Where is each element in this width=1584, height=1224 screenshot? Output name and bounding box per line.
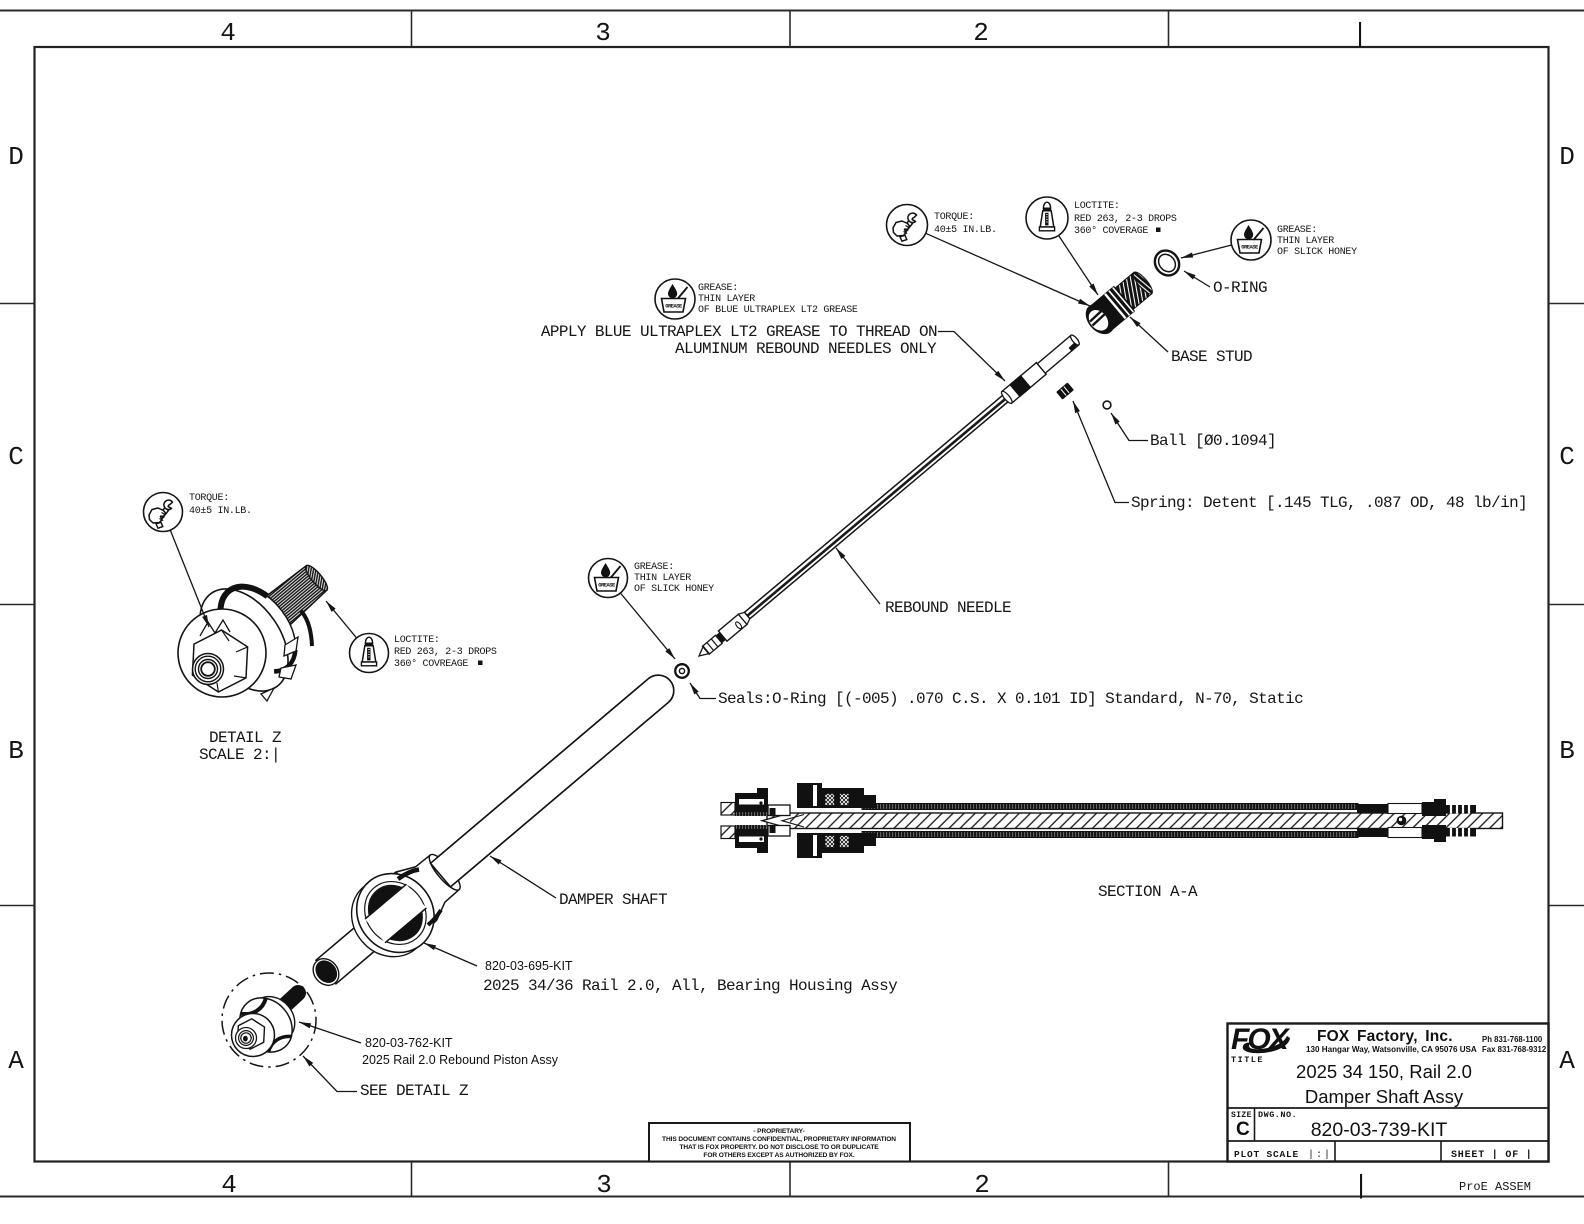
svg-text:ALUMINUM REBOUND NEEDLES ONLY: ALUMINUM REBOUND NEEDLES ONLY <box>675 340 937 358</box>
svg-text:D: D <box>1559 142 1575 172</box>
svg-text:820-03-762-KIT: 820-03-762-KIT <box>365 1036 453 1050</box>
svg-text:PLOT SCALE: PLOT SCALE <box>1234 1149 1299 1160</box>
svg-text:D: D <box>8 142 24 172</box>
svg-text:2025 34 150, Rail 2.0: 2025 34 150, Rail 2.0 <box>1296 1061 1472 1082</box>
svg-text:DAMPER SHAFT: DAMPER SHAFT <box>559 891 667 909</box>
svg-text:FOX Factory, Inc.: FOX Factory, Inc. <box>1317 1028 1453 1045</box>
svg-text:C: C <box>1236 1119 1250 1140</box>
svg-text:GREASE:: GREASE: <box>698 283 738 294</box>
svg-text:RED 263, 2-3 DROPS: RED 263, 2-3 DROPS <box>1074 214 1177 225</box>
svg-text:360° COVERAGE: 360° COVERAGE <box>1074 225 1148 237</box>
svg-text:RED 263, 2-3 DROPS: RED 263, 2-3 DROPS <box>394 647 497 658</box>
svg-text:TITLE: TITLE <box>1231 1055 1264 1065</box>
svg-text:THIN LAYER: THIN LAYER <box>1277 236 1334 247</box>
svg-text:2: 2 <box>973 18 989 48</box>
svg-text:SCALE 2:|: SCALE 2:| <box>199 746 280 764</box>
svg-text:3: 3 <box>595 18 611 48</box>
svg-text:TORQUE:: TORQUE: <box>934 212 974 223</box>
svg-text:O-RING: O-RING <box>1213 279 1267 297</box>
svg-text:360° COVREAGE: 360° COVREAGE <box>394 658 468 670</box>
svg-text:3: 3 <box>596 1170 612 1200</box>
svg-text:DETAIL Z: DETAIL Z <box>209 729 282 747</box>
svg-text:THIS DOCUMENT CONTAINS CONFIDE: THIS DOCUMENT CONTAINS CONFIDENTIAL, PRO… <box>662 1136 896 1143</box>
svg-text:- PROPRIETARY-: - PROPRIETARY- <box>753 1128 804 1135</box>
svg-text:40±5 IN.LB.: 40±5 IN.LB. <box>189 506 252 517</box>
svg-text:Spring: Detent [.145 TLG, .087: Spring: Detent [.145 TLG, .087 OD, 48 lb… <box>1131 494 1527 512</box>
svg-text:820-03-739-KIT: 820-03-739-KIT <box>1311 1119 1448 1141</box>
svg-text:C: C <box>1559 442 1575 472</box>
svg-text:A: A <box>8 1046 24 1076</box>
svg-text:GREASE:: GREASE: <box>1277 225 1317 236</box>
svg-text:A: A <box>1559 1046 1575 1076</box>
svg-text:THAT IS FOX PROPERTY. DO NOT: THAT IS FOX PROPERTY. DO NOT DISCLOSE TO… <box>679 1144 879 1151</box>
svg-text:820-03-695-KIT: 820-03-695-KIT <box>485 959 573 973</box>
svg-text:LOCTITE:: LOCTITE: <box>1074 201 1120 212</box>
svg-text:THIN LAYER: THIN LAYER <box>634 573 691 584</box>
svg-text:REBOUND NEEDLE: REBOUND NEEDLE <box>885 599 1011 617</box>
svg-text:GREASE:: GREASE: <box>634 562 674 573</box>
svg-text:SHEET | OF |: SHEET | OF | <box>1451 1149 1533 1161</box>
svg-text:Seals:O-Ring [(-005) .070 C.S.: Seals:O-Ring [(-005) .070 C.S. X 0.101 I… <box>718 690 1303 708</box>
svg-text:Damper Shaft Assy: Damper Shaft Assy <box>1305 1086 1464 1107</box>
svg-text:2025 Rail 2.0 Rebound Piston A: 2025 Rail 2.0 Rebound Piston Assy <box>362 1053 559 1067</box>
svg-text:|: | <box>1353 1171 1369 1201</box>
svg-text:Ball [Ø0.1094]: Ball [Ø0.1094] <box>1150 432 1276 450</box>
svg-text:DWG.NO.: DWG.NO. <box>1258 1110 1297 1120</box>
svg-text:BASE STUD: BASE STUD <box>1171 348 1252 366</box>
svg-text:B: B <box>8 736 24 766</box>
svg-text:ProE ASSEM: ProE ASSEM <box>1459 1180 1531 1194</box>
svg-text:APPLY BLUE ULTRAPLEX LT2 GREAS: APPLY BLUE ULTRAPLEX LT2 GREASE TO THREA… <box>541 323 937 341</box>
svg-text:SECTION A-A: SECTION A-A <box>1098 883 1198 901</box>
svg-text:2025 34/36 Rail 2.0, All, Bear: 2025 34/36 Rail 2.0, All, Bearing Housin… <box>483 977 898 995</box>
svg-text:Fax 831-768-9312: Fax 831-768-9312 <box>1482 1045 1547 1054</box>
svg-text:OF SLICK HONEY: OF SLICK HONEY <box>1277 247 1357 258</box>
svg-text:OF SLICK HONEY: OF SLICK HONEY <box>634 584 714 595</box>
svg-text:40±5 IN.LB.: 40±5 IN.LB. <box>934 225 997 236</box>
svg-text:OF BLUE ULTRAPLEX LT2 GREASE: OF BLUE ULTRAPLEX LT2 GREASE <box>698 305 858 316</box>
svg-text:THIN LAYER: THIN LAYER <box>698 294 755 305</box>
svg-text:130 Hangar Way, Watsonville, C: 130 Hangar Way, Watsonville, CA 95076 US… <box>1306 1045 1477 1054</box>
svg-text:2: 2 <box>974 1170 990 1200</box>
svg-text:B: B <box>1559 736 1575 766</box>
svg-text:LOCTITE:: LOCTITE: <box>394 635 440 646</box>
svg-text:|:|: |:| <box>1308 1149 1332 1161</box>
svg-text:SEE DETAIL Z: SEE DETAIL Z <box>360 1082 469 1100</box>
svg-text:4: 4 <box>221 1170 237 1200</box>
svg-text:TORQUE:: TORQUE: <box>189 493 229 504</box>
svg-text:Ph 831-768-1100: Ph 831-768-1100 <box>1482 1035 1543 1044</box>
svg-text:4: 4 <box>220 18 236 48</box>
svg-text:C: C <box>8 442 24 472</box>
svg-text:|: | <box>1352 19 1368 49</box>
svg-text:FOR OTHERS EXCEPT AS AUTHORIZE: FOR OTHERS EXCEPT AS AUTHORIZED BY FOX. <box>703 1152 854 1159</box>
